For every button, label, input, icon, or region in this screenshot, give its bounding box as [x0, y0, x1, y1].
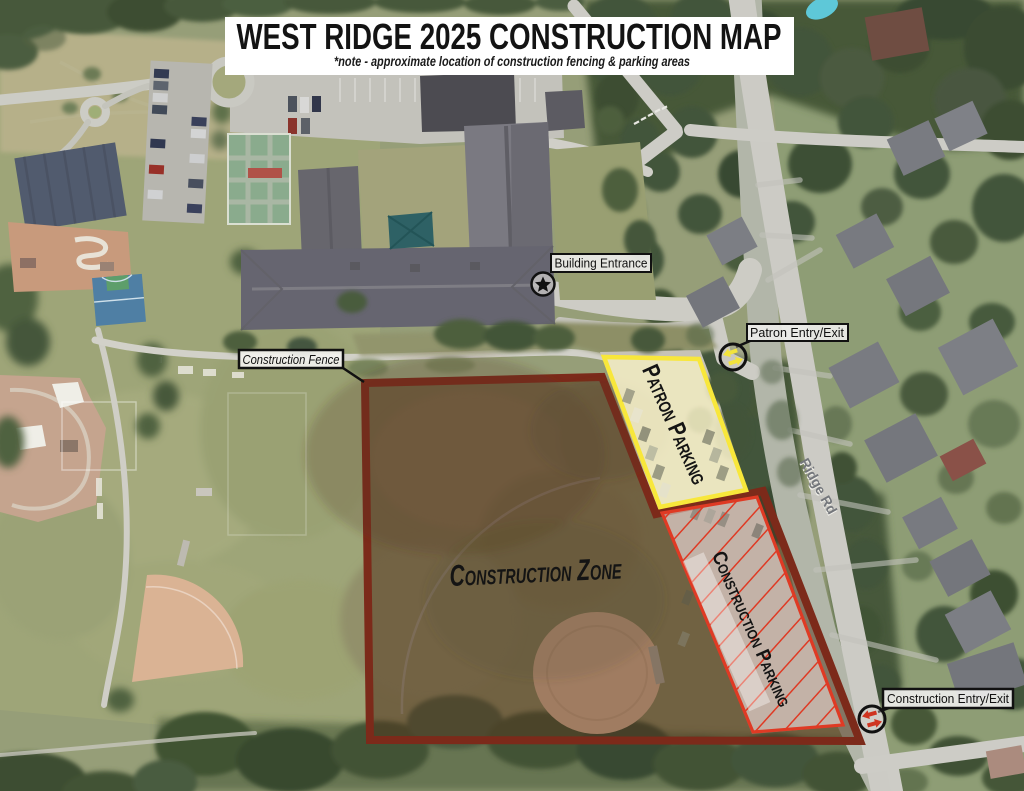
svg-text:Building Entrance: Building Entrance	[555, 257, 648, 271]
svg-text:Patron Entry/Exit: Patron Entry/Exit	[750, 326, 845, 340]
svg-text:*note - approximate location o: *note - approximate location of construc…	[334, 54, 690, 69]
svg-text:Construction Fence: Construction Fence	[243, 352, 340, 367]
svg-text:Construction Entry/Exit: Construction Entry/Exit	[887, 691, 1009, 706]
svg-text:WEST RIDGE 2025 CONSTRUCTION M: WEST RIDGE 2025 CONSTRUCTION MAP	[237, 16, 782, 57]
